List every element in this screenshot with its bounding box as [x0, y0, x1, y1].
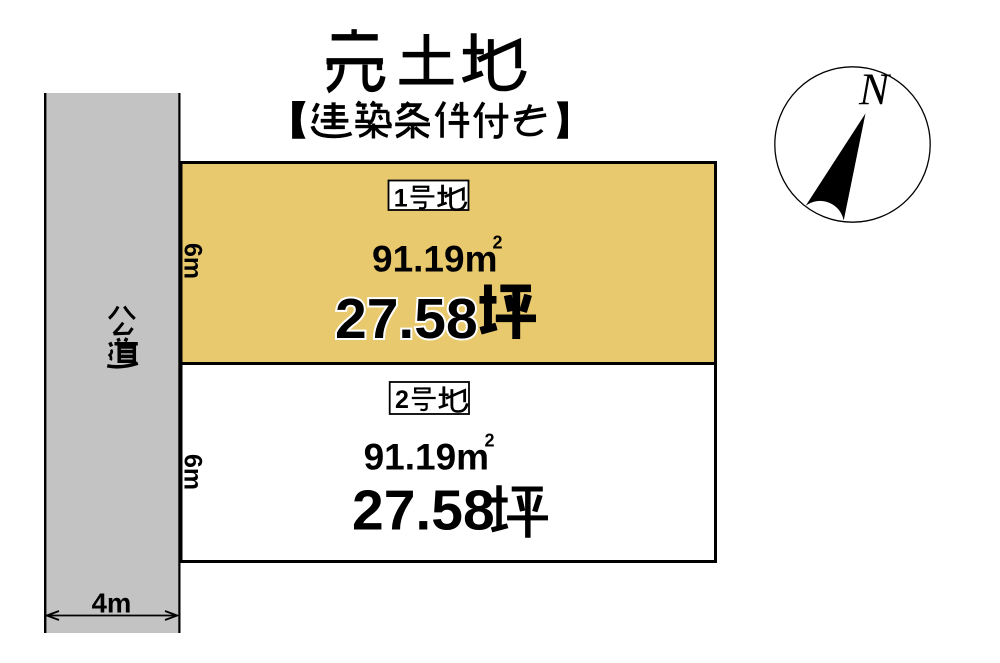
- svg-text:27.58: 27.58: [335, 287, 478, 351]
- svg-text:6m: 6m: [178, 454, 206, 490]
- svg-text:4m: 4m: [92, 588, 132, 619]
- svg-text:2: 2: [493, 233, 503, 253]
- svg-text:6m: 6m: [178, 243, 206, 279]
- svg-text:27.58: 27.58: [352, 479, 495, 543]
- svg-text:2: 2: [485, 431, 495, 451]
- svg-text:91.19m: 91.19m: [372, 239, 498, 280]
- svg-text:N: N: [858, 64, 892, 114]
- svg-text:2: 2: [395, 386, 409, 414]
- svg-text:91.19m: 91.19m: [364, 437, 490, 478]
- svg-text:1: 1: [394, 184, 408, 212]
